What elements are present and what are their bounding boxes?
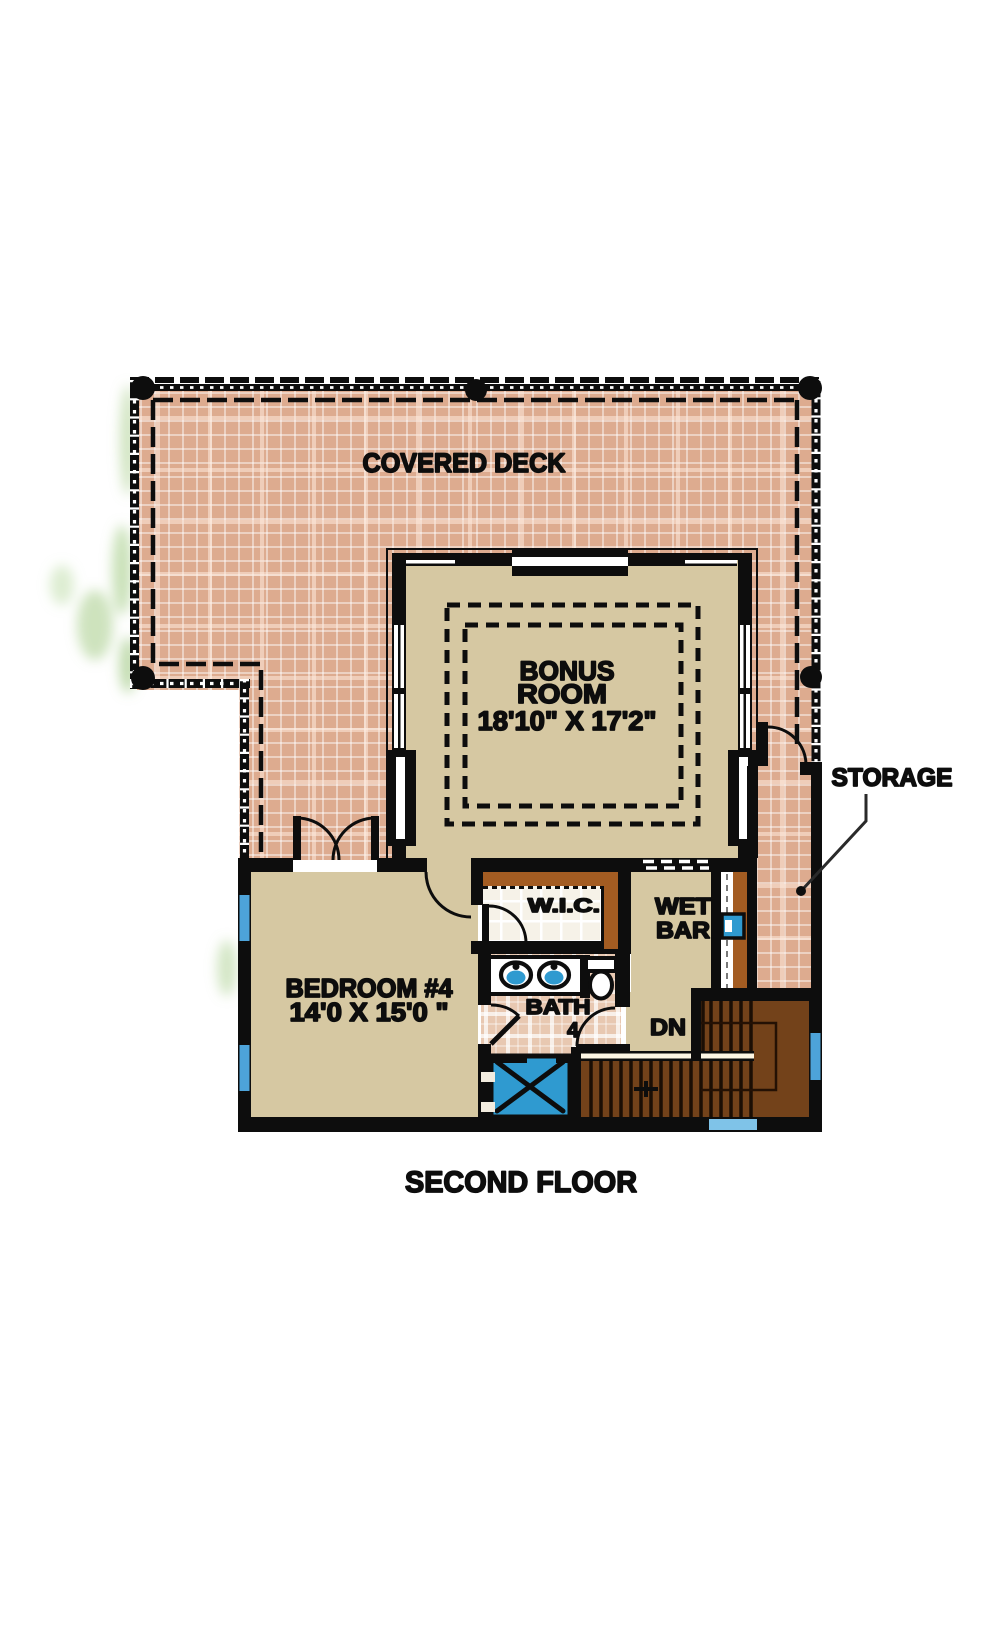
svg-text:DN: DN [650, 1014, 686, 1040]
svg-text:ROOM: ROOM [517, 679, 607, 709]
svg-text:WET: WET [655, 893, 711, 919]
svg-text:14'0 X 15'0 ": 14'0 X 15'0 " [290, 997, 449, 1027]
svg-text:SECOND FLOOR: SECOND FLOOR [405, 1166, 637, 1199]
svg-text:BAR: BAR [656, 917, 710, 943]
svg-text:COVERED DECK: COVERED DECK [363, 448, 566, 478]
svg-text:BATH: BATH [526, 996, 591, 1019]
svg-text:18'10" X 17'2": 18'10" X 17'2" [478, 706, 657, 736]
svg-text:W.I.C.: W.I.C. [528, 896, 600, 917]
svg-text:STORAGE: STORAGE [832, 764, 953, 792]
